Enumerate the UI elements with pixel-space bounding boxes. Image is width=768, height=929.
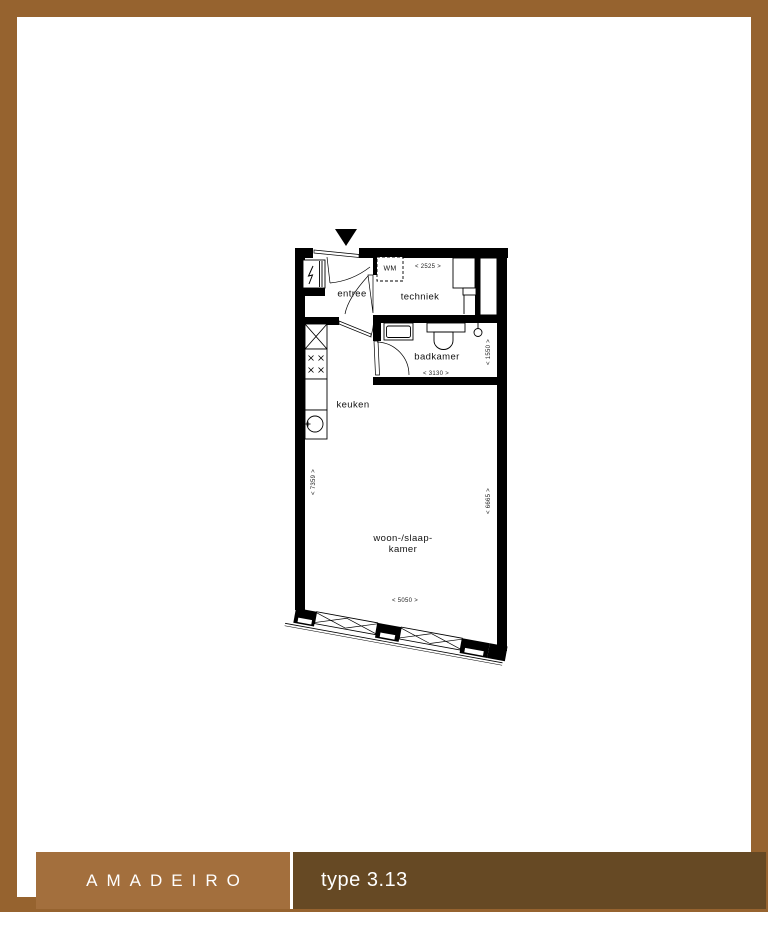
page-frame: entree techniek badkamer keuken woon-/sl… (0, 0, 768, 912)
type-block: type 3.13 (293, 852, 766, 909)
bathroom-fixtures (384, 320, 482, 350)
meter-cupboard (303, 260, 325, 288)
dimension-facade-width: < 5050 > (392, 598, 418, 604)
toilet-icon (427, 323, 465, 350)
room-label-woonslaapkamer-line2: kamer (373, 544, 432, 555)
brand-name: AMADEIRO (77, 871, 249, 891)
dimension-right-depth: < 6665 > (486, 488, 492, 514)
footer-bar: AMADEIRO type 3.13 (36, 852, 766, 909)
entrance-arrow-icon (335, 229, 357, 246)
sheet-background: entree techniek badkamer keuken woon-/sl… (17, 17, 751, 897)
window-2 (399, 627, 462, 650)
washing-machine-label: WM (383, 266, 396, 273)
bathroom-door (374, 341, 409, 375)
dimension-techniek-width: < 2525 > (415, 264, 441, 270)
kitchen-unit (305, 324, 327, 439)
room-label-woonslaapkamer-line1: woon-/slaap- (373, 533, 432, 544)
counter (305, 379, 327, 410)
drain-point-icon (474, 323, 482, 337)
room-label-badkamer: badkamer (414, 352, 459, 363)
room-label-techniek: techniek (401, 292, 440, 303)
room-label-keuken: keuken (336, 400, 369, 411)
dimension-badkamer-width: < 3130 > (423, 371, 449, 377)
hall-door (339, 321, 374, 337)
apartment-type-label: type 3.13 (321, 869, 408, 892)
brand-block: AMADEIRO (36, 852, 290, 909)
walls (295, 248, 508, 651)
dimension-left-depth: < 7359 > (311, 469, 317, 495)
dimension-badkamer-depth: < 1550 > (486, 339, 492, 365)
floor-plan-svg (17, 17, 768, 929)
utility-shaft (480, 258, 497, 315)
room-label-entree: entree (337, 289, 366, 300)
cooktop-icon (305, 349, 327, 379)
room-label-woonslaapkamer: woon-/slaap- kamer (373, 533, 432, 555)
window-1 (315, 612, 378, 635)
facade-windows (285, 607, 508, 666)
techniek-cabinet (453, 258, 476, 314)
